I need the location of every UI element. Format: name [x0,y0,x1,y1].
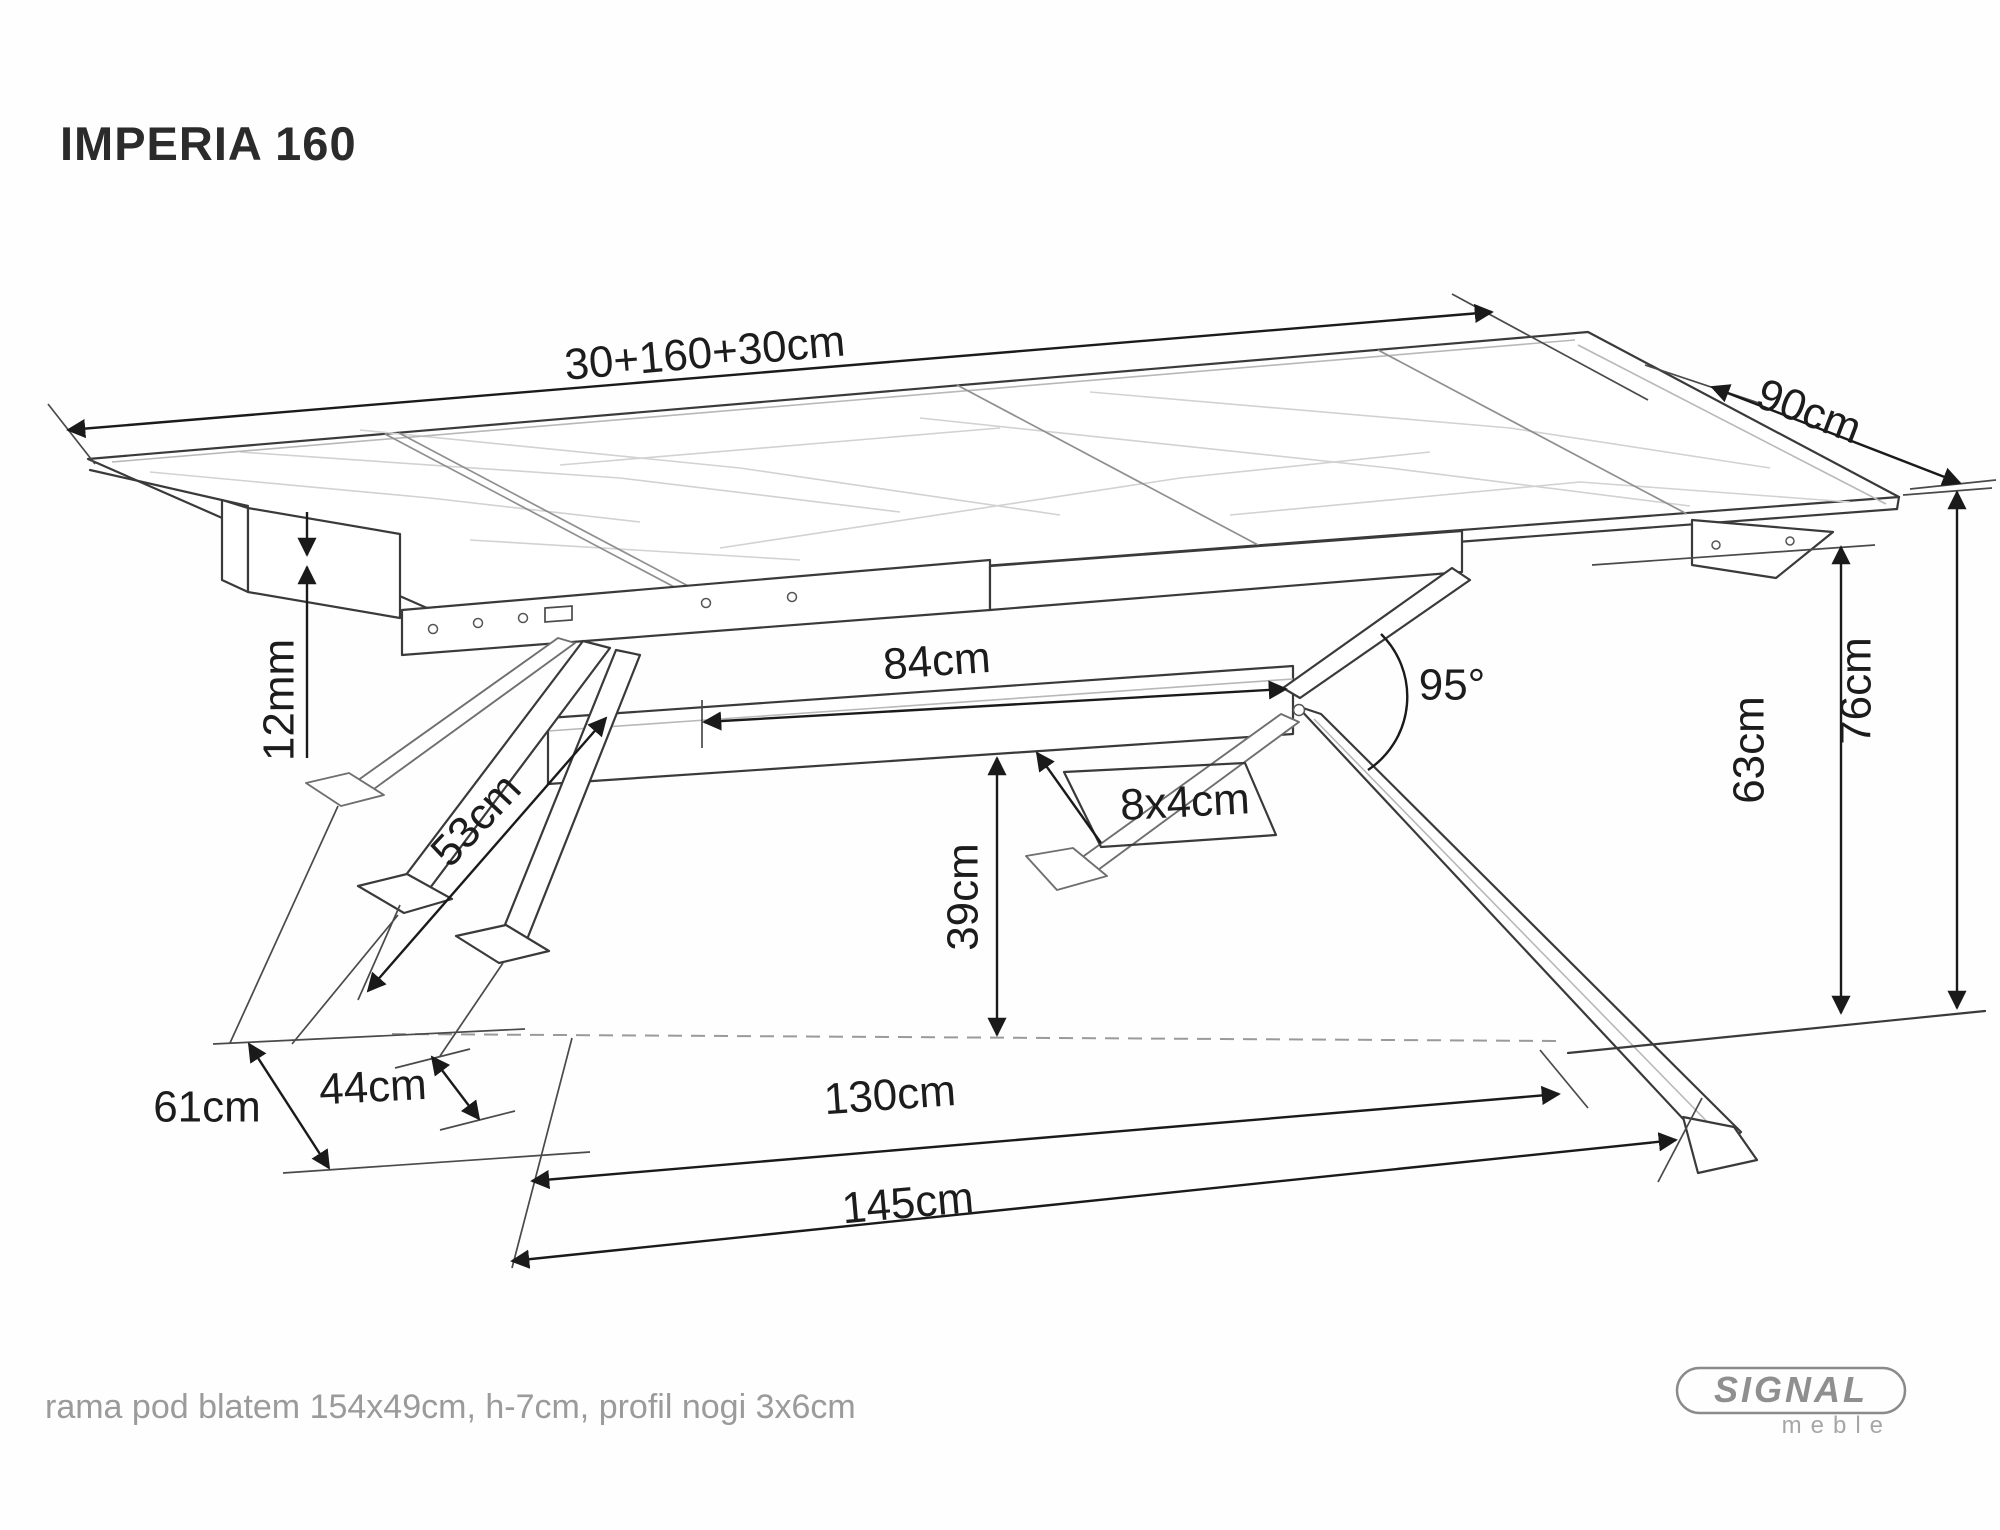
rail-screw-1 [429,625,438,634]
frame-note: rama pod blatem 154x49cm, h-7cm, profil … [45,1388,856,1426]
witness-floor-lower [283,1152,590,1173]
dimension-feet-span-inner: 130cm [532,1066,1559,1181]
left-inner-foot [456,925,549,963]
table-diagram-svg: 30+160+30cm 90cm 84cm 95° 8x4cm 12mm 53c… [0,0,2000,1530]
logo-brand-text: SIGNAL [1714,1369,1868,1410]
dimension-beam-profile: 8x4cm [1037,753,1276,847]
support-box-side [222,500,248,592]
brand-logo: SIGNAL meble [1677,1368,1905,1439]
right-front-foot [1683,1117,1757,1173]
leg-angle-label: 95° [1419,661,1486,710]
foot-projection-2 [440,963,503,1056]
witness-130-right [1540,1050,1588,1108]
feet-span-inner-label: 130cm [822,1066,957,1124]
right-strut-highlight [1314,719,1724,1139]
rail-screw-4 [702,599,711,608]
frame-clearance-label: 63cm [1725,696,1774,804]
dimension-frame-clearance: 63cm [1592,545,1875,1013]
foot-depth-label: 61cm [153,1083,261,1132]
dimension-foot-depth: 61cm [153,1044,329,1168]
dimension-table-height: 76cm [1832,488,1992,1008]
top-thickness-label: 12mm [255,639,304,761]
floor-dashed-line [392,1034,1556,1041]
foot-inset-label: 44cm [318,1060,428,1115]
left-front-foot [358,874,452,913]
beam-profile-label: 8x4cm [1119,774,1251,830]
leg-joint-bolt [1294,705,1305,716]
beam-clearance-label: 39cm [939,843,988,951]
dimension-beam-clearance: 39cm [939,758,997,1035]
witness-44-bottom [440,1111,515,1130]
witness-floor-upper [213,1029,525,1044]
total-length-label: 30+160+30cm [562,316,847,389]
logo-subbrand-text: meble [1782,1412,1892,1439]
page-title: IMPERIA 160 [60,117,357,170]
rail-screw-5 [788,593,797,602]
rail-screw-3 [519,614,528,623]
table-height-label: 76cm [1832,637,1881,745]
beam-length-label: 84cm [881,633,992,689]
dimension-feet-span-outer: 145cm [512,1140,1676,1261]
technical-drawing-page: 30+160+30cm 90cm 84cm 95° 8x4cm 12mm 53c… [0,0,2000,1530]
rail-screw-2 [474,619,483,628]
dimension-leg-angle: 95° [1368,634,1485,770]
bracket-screw-2 [1786,537,1794,545]
edge-cap-right [1897,497,1899,509]
foot-projection-1 [292,915,398,1044]
bracket-screw-1 [1712,541,1720,549]
legs-right [1026,568,1757,1173]
feet-span-outer-label: 145cm [840,1173,976,1233]
dimension-foot-inset: 44cm [318,1057,479,1119]
